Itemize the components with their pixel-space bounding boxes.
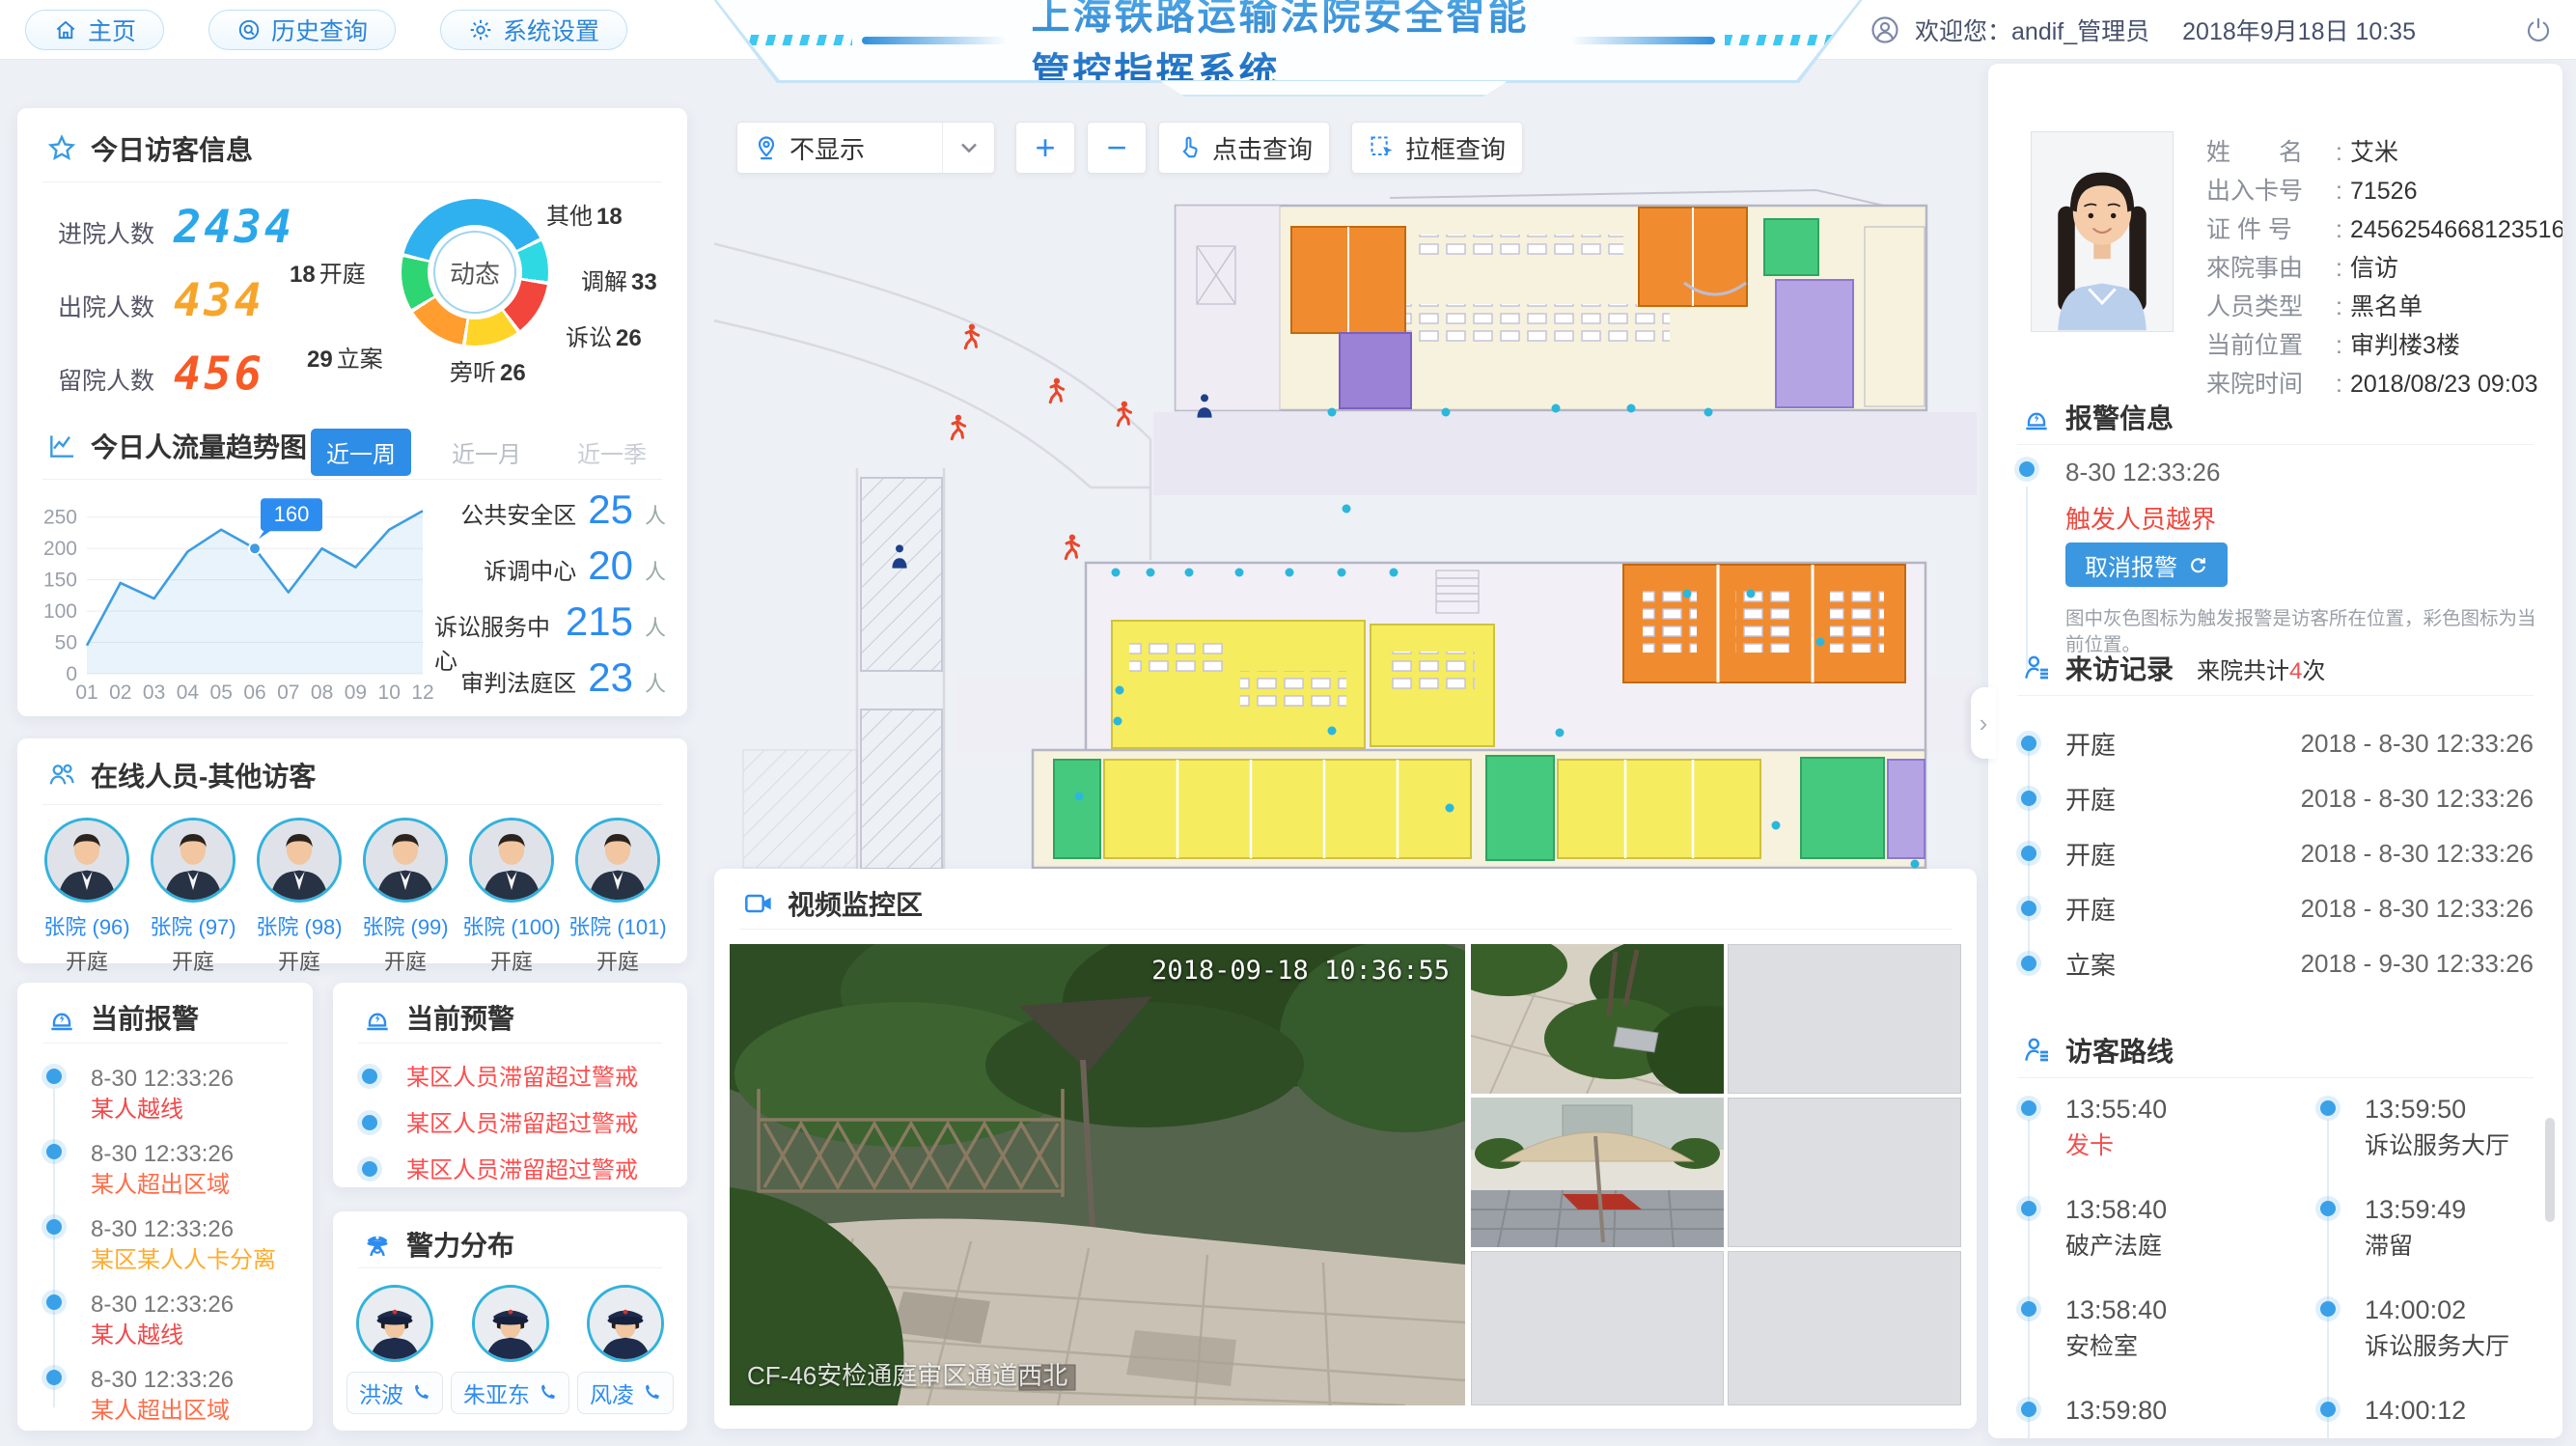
timeline-dot — [2021, 956, 2036, 971]
person-field-label: 人员类型 — [2206, 288, 2334, 326]
online-person-name: 张院 (97) — [150, 910, 235, 941]
timeline-dot — [2320, 1301, 2336, 1317]
video-title: 视频监控区 — [788, 884, 923, 923]
online-person-name: 张院 (100) — [462, 910, 560, 941]
avatar — [151, 818, 235, 903]
online-person[interactable]: 张院 (97) 开庭 — [143, 818, 243, 976]
area-stat-unit: 人 — [645, 611, 666, 642]
male-avatar-image — [472, 820, 551, 900]
timeline-dot — [46, 1294, 62, 1310]
app-title-banner: 上海铁路运输法院安全智能管控指挥系统 — [714, 0, 1863, 83]
visitor-stat-label: 进院人数 — [58, 215, 154, 250]
visit-date: 2018 - 8-30 12:33:26 — [2301, 729, 2534, 759]
officer[interactable]: 洪波 — [346, 1285, 443, 1414]
person-list-icon — [2021, 653, 2052, 683]
alarm-time: 8-30 12:33:26 — [91, 1064, 297, 1095]
person-photo — [2031, 131, 2174, 332]
visit-record-row: 开庭 2018 - 8-30 12:33:26 — [2017, 881, 2534, 936]
warning-text: 某区人员滞留超过警戒 — [406, 1064, 672, 1093]
person-field-row: 当前位置 : 审判楼3楼 — [2206, 326, 2562, 365]
detail-panel: 姓 名 : 艾米 出入卡号 : 71526 证 件 号 : 2456254668… — [1988, 64, 2562, 1438]
nav-settings-label: 系统设置 — [503, 13, 599, 47]
current-alarm-card: 当前报警 8-30 12:33:26 某人越线 8-30 12:33:26 某人… — [17, 983, 313, 1431]
area-stat-label: 公共安全区 — [460, 496, 576, 530]
visitor-stat-row: 出院人数 434 — [58, 274, 294, 348]
area-stat-row: 诉调中心 20 人 — [434, 542, 666, 598]
avatar — [44, 818, 129, 903]
top-bar: 主页 历史查询 系统设置 上海铁路运输法院安全智能管控指挥系统 欢迎您：andi… — [0, 0, 2576, 60]
route-place: 安检室 — [2065, 1330, 2287, 1363]
person-field-label: 当前位置 — [2206, 326, 2334, 365]
person-field-colon: : — [2336, 288, 2342, 326]
alarm-info-title: 报警信息 — [2065, 398, 2174, 436]
donut-label-tiaojie: 调解33 — [581, 263, 661, 296]
police-distribution-card: 警力分布 洪波 朱亚东 风凌 — [333, 1211, 687, 1431]
route-entry: 13:59:80 — [2017, 1394, 2287, 1438]
star-icon — [46, 133, 77, 164]
timeline-dot — [46, 1144, 62, 1159]
warning-item[interactable]: 某区人员滞留超过警戒 — [362, 1064, 672, 1093]
person-field-value: 黑名单 — [2350, 288, 2423, 326]
online-person[interactable]: 张院 (96) 开庭 — [37, 818, 137, 976]
area-stat-unit: 人 — [645, 555, 666, 586]
police-avatar-image — [359, 1288, 430, 1359]
timeline-dot — [46, 1219, 62, 1235]
svg-text:250: 250 — [43, 507, 77, 529]
online-person-name: 张院 (96) — [43, 910, 129, 941]
person-field-value: 审判楼3楼 — [2350, 326, 2460, 365]
donut-label-kaiting: 18开庭 — [286, 255, 366, 289]
avatar — [257, 818, 342, 903]
warning-item[interactable]: 某区人员滞留超过警戒 — [362, 1156, 672, 1185]
visit-type: 开庭 — [2065, 726, 2116, 762]
route-column-left: 13:55:40 发卡 13:58:40 破产法庭 13:58:40 安检室 1… — [2017, 1093, 2287, 1438]
svg-text:160: 160 — [274, 502, 310, 526]
svg-text:01: 01 — [75, 681, 97, 704]
route-time: 13:58:40 — [2065, 1193, 2287, 1226]
online-person-status: 开庭 — [66, 945, 108, 976]
timeline-dot — [46, 1370, 62, 1385]
online-people-row: 张院 (96) 开庭 张院 (97) 开庭 张院 (98) 开庭 张院 (99)… — [37, 818, 668, 976]
current-alarm-header: 当前报警 — [46, 998, 199, 1037]
visit-date: 2018 - 8-30 12:33:26 — [2301, 784, 2534, 814]
alarm-time: 8-30 12:33:26 — [91, 1290, 297, 1321]
timeline-dot — [2021, 1201, 2036, 1216]
title-banner-tab — [1160, 81, 1508, 97]
timeline-dot — [2021, 791, 2036, 806]
video-main-feed[interactable]: 2018-09-18 10:36:55 CF-46安检通庭审区通道西北 — [730, 944, 1465, 1405]
phone-icon — [538, 1383, 557, 1403]
alarm-icon — [2021, 402, 2052, 432]
map-visitor-markers[interactable] — [952, 324, 1130, 559]
divider — [358, 1043, 662, 1043]
title-decoration-right — [1570, 35, 1860, 45]
history-search-icon — [236, 17, 262, 42]
divider — [42, 479, 662, 480]
welcome-text: 欢迎您：andif_管理员 — [1915, 13, 2149, 47]
route-place: 滞留 — [2365, 1230, 2548, 1263]
route-entry: 13:58:40 安检室 — [2017, 1293, 2287, 1394]
video-placeholder[interactable] — [1471, 1251, 1724, 1405]
route-time: 13:55:40 — [2065, 1093, 2287, 1126]
person-field-value: 245625466812351625 — [2350, 210, 2562, 249]
area-stat-value: 23 — [588, 654, 633, 701]
map-click-query-button[interactable]: 点击查询 — [1158, 122, 1330, 174]
route-place: 诉讼服务大厅 — [2365, 1330, 2548, 1363]
visit-count-text: 来院共计4次 — [2197, 652, 2325, 685]
route-time: 13:59:80 — [2065, 1394, 2287, 1427]
timeline-rail — [2026, 487, 2028, 670]
officer-name: 洪波 — [359, 1376, 403, 1409]
officer[interactable]: 风凌 — [577, 1285, 674, 1414]
phone-icon — [642, 1383, 661, 1403]
power-icon[interactable] — [2524, 15, 2553, 44]
cancel-alarm-button[interactable]: 取消报警 — [2065, 542, 2228, 587]
person-field-colon: : — [2336, 326, 2342, 365]
visit-type: 开庭 — [2065, 836, 2116, 872]
main-nav: 主页 历史查询 系统设置 — [25, 0, 627, 60]
visitor-route-title: 访客路线 — [2065, 1031, 2174, 1070]
donut-center-label: 动态 — [402, 199, 548, 346]
video-placeholder[interactable] — [1728, 1098, 1961, 1247]
tab-quarter[interactable]: 近一季 — [562, 429, 662, 476]
alarm-icon — [46, 1002, 77, 1033]
map-box-query-label: 拉框查询 — [1405, 130, 1506, 166]
map-building-top — [1176, 190, 1926, 410]
visit-type: 开庭 — [2065, 891, 2116, 927]
map-parking-strip — [861, 478, 942, 671]
online-header: 在线人员-其他访客 — [46, 756, 316, 794]
alarm-time: 8-30 12:33:26 — [91, 1139, 297, 1170]
person-field-value: 信访 — [2350, 249, 2398, 288]
video-thumb-2-scene — [1471, 1098, 1724, 1247]
person-field-label: 来院时间 — [2206, 365, 2334, 403]
alarm-timeline: 8-30 12:33:26 某人越线 8-30 12:33:26 某人超出区域 … — [46, 1064, 297, 1431]
visitor-stat-row: 进院人数 2434 — [58, 201, 294, 274]
route-entry: 13:55:40 发卡 — [2017, 1093, 2287, 1193]
visitor-stat-value: 434 — [174, 274, 264, 327]
visit-type: 立案 — [2065, 946, 2116, 982]
alarm-text: 某人越线 — [91, 1095, 297, 1126]
area-stat-value: 215 — [566, 598, 633, 645]
visitor-info-title: 今日访客信息 — [91, 129, 253, 168]
floor-plan-map[interactable] — [714, 188, 1979, 874]
route-place: 发卡 — [2065, 1129, 2287, 1162]
route-entry: 13:59:49 滞留 — [2316, 1193, 2548, 1293]
chevron-down-icon — [956, 134, 983, 161]
avatar — [587, 1285, 664, 1362]
video-camera-label: CF-46安检通庭审区通道西北 — [747, 1356, 1067, 1392]
route-time: 13:59:50 — [2365, 1093, 2548, 1126]
title-decoration-left — [717, 35, 1007, 45]
map-box-query-button[interactable]: 拉框查询 — [1351, 122, 1523, 174]
timeline-dot — [2021, 846, 2036, 861]
visitor-stat-row: 留院人数 456 — [58, 348, 294, 421]
timeline-dot — [362, 1115, 377, 1130]
visit-record-title: 来访记录 — [2065, 649, 2174, 687]
person-field-row: 姓 名 : 艾米 — [2206, 133, 2562, 172]
area-stat-value: 25 — [588, 487, 633, 533]
donut-label-lian: 29立案 — [303, 340, 383, 374]
route-time: 13:59:49 — [2365, 1193, 2548, 1226]
person-field-label: 出入卡号 — [2206, 172, 2334, 210]
visitor-donut-chart: 动态 — [402, 199, 548, 346]
visit-record-row: 开庭 2018 - 8-30 12:33:26 — [2017, 716, 2534, 771]
svg-text:200: 200 — [43, 538, 77, 560]
hand-pointer-icon — [1176, 134, 1203, 161]
person-field-label: 姓 名 — [2206, 133, 2334, 172]
nav-home-button[interactable]: 主页 — [25, 10, 164, 50]
online-title: 在线人员-其他访客 — [91, 756, 316, 794]
box-select-cursor-icon — [1369, 134, 1396, 161]
timeline-dot — [46, 1069, 62, 1084]
area-stat-unit: 人 — [645, 499, 666, 530]
timeline-dot — [2021, 1100, 2036, 1116]
svg-text:03: 03 — [143, 681, 165, 704]
svg-text:09: 09 — [345, 681, 367, 704]
svg-text:06: 06 — [243, 681, 265, 704]
nav-home-label: 主页 — [88, 13, 136, 47]
svg-text:50: 50 — [55, 632, 77, 654]
visit-record-list: 开庭 2018 - 8-30 12:33:26 开庭 2018 - 8-30 1… — [2017, 716, 2534, 991]
online-person[interactable]: 张院 (99) 开庭 — [355, 818, 456, 976]
svg-text:10: 10 — [378, 681, 401, 704]
alarm-item[interactable]: 8-30 12:33:26 某人超出区域 — [46, 1365, 297, 1427]
male-avatar-image — [366, 820, 445, 900]
officers-row: 洪波 朱亚东 风凌 — [343, 1285, 678, 1414]
online-person[interactable]: 张院 (101) 开庭 — [568, 818, 668, 976]
video-thumb-1-scene — [1471, 944, 1724, 1094]
alarm-text: 某人超出区域 — [91, 1170, 297, 1201]
person-portrait — [2032, 132, 2173, 331]
alarm-text: 某人超出区域 — [91, 1396, 297, 1427]
warning-text: 某区人员滞留超过警戒 — [406, 1110, 672, 1139]
area-stat-row: 公共安全区 25 人 — [434, 487, 666, 542]
person-field-row: 來院事由 : 信访 — [2206, 249, 2562, 288]
video-thumb-2[interactable] — [1471, 1098, 1724, 1247]
person-field-value: 71526 — [2350, 172, 2418, 210]
phone-icon — [411, 1383, 430, 1403]
donut-label-qita: 其他18 — [546, 197, 626, 231]
timeline-dot — [2320, 1402, 2336, 1417]
svg-text:02: 02 — [109, 681, 131, 704]
area-stat-unit: 人 — [645, 667, 666, 698]
person-field-value: 艾米 — [2350, 133, 2398, 172]
donut-label-susong: 诉讼26 — [566, 319, 646, 352]
timeline-dot — [2021, 1301, 2036, 1317]
map-parking-strip — [861, 709, 942, 869]
datetime-text: 2018年9月18日 10:35 — [2182, 13, 2416, 47]
timeline-dot — [362, 1161, 377, 1177]
alarm-info-time: 8-30 12:33:26 — [2065, 458, 2220, 487]
alarm-item[interactable]: 8-30 12:33:26 某区某人人卡分离 — [46, 1214, 297, 1276]
person-route-icon — [2021, 1035, 2052, 1066]
visitor-route-header: 访客路线 — [2021, 1031, 2174, 1070]
online-person-status: 开庭 — [596, 945, 639, 976]
svg-text:05: 05 — [210, 681, 233, 704]
gear-icon — [468, 17, 493, 42]
video-timestamp: 2018-09-18 10:36:55 — [1151, 956, 1450, 986]
divider — [42, 181, 662, 182]
svg-text:150: 150 — [43, 570, 77, 592]
male-avatar-image — [47, 820, 126, 900]
location-pin-icon — [753, 134, 780, 161]
officer-name: 风凌 — [590, 1376, 634, 1409]
alarm-text: 某区某人人卡分离 — [91, 1245, 297, 1276]
visit-record-row: 开庭 2018 - 8-30 12:33:26 — [2017, 771, 2534, 826]
video-main-scene — [730, 944, 1465, 1405]
timeline-dot — [2019, 461, 2035, 477]
cancel-alarm-label: 取消报警 — [2085, 548, 2177, 582]
user-icon — [1870, 15, 1899, 44]
divider — [42, 804, 662, 805]
trend-header: 今日人流量趋势图 — [46, 427, 307, 465]
route-place: 诉讼服务大厅 — [2365, 1129, 2548, 1162]
visitor-stats: 进院人数 2434 出院人数 434 留院人数 456 — [58, 201, 294, 421]
alarm-time: 8-30 12:33:26 — [91, 1365, 297, 1396]
divider — [42, 1043, 288, 1043]
video-header: 视频监控区 — [743, 884, 923, 923]
male-avatar-image — [153, 820, 233, 900]
male-avatar-image — [260, 820, 339, 900]
video-camera-icon — [743, 888, 774, 919]
person-field-colon: : — [2336, 210, 2342, 249]
area-stat-label: 审判法庭区 — [460, 664, 576, 698]
route-time: 14:00:12 — [2365, 1394, 2548, 1427]
trend-tabs: 近一周 近一月 近一季 — [311, 429, 662, 476]
officer[interactable]: 朱亚东 — [451, 1285, 569, 1414]
officer-call-pill[interactable]: 风凌 — [577, 1372, 674, 1414]
person-field-value: 2018/08/23 09:03 — [2350, 365, 2538, 403]
person-field-row: 来院时间 : 2018/08/23 09:03 — [2206, 365, 2562, 403]
online-person-status: 开庭 — [172, 945, 214, 976]
officer-call-pill[interactable]: 朱亚东 — [451, 1372, 569, 1414]
route-time: 13:58:40 — [2065, 1293, 2287, 1326]
warning-item[interactable]: 某区人员滞留超过警戒 — [362, 1110, 672, 1139]
online-person[interactable]: 张院 (100) 开庭 — [461, 818, 562, 976]
map-zoom-out-button[interactable]: − — [1087, 122, 1147, 174]
person-field-row: 证 件 号 : 245625466812351625 — [2206, 210, 2562, 249]
dropdown-chevron[interactable] — [942, 123, 994, 173]
area-stat-label: 诉调中心 — [484, 552, 576, 586]
refresh-icon — [2187, 554, 2208, 575]
timeline-dot — [2320, 1201, 2336, 1216]
avatar — [356, 1285, 433, 1362]
visit-date: 2018 - 8-30 12:33:26 — [2301, 839, 2534, 869]
line-chart-icon — [46, 431, 77, 461]
male-avatar-image — [578, 820, 657, 900]
map-layer-value: 不显示 — [789, 130, 865, 166]
visitor-stat-label: 出院人数 — [58, 289, 154, 323]
online-person[interactable]: 张院 (98) 开庭 — [249, 818, 349, 976]
online-people-card: 在线人员-其他访客 张院 (96) 开庭 张院 (97) 开庭 张院 (98) … — [17, 738, 687, 963]
map-corridor-upper — [1153, 412, 1977, 495]
warning-text: 某区人员滞留超过警戒 — [406, 1156, 672, 1185]
person-field-label: 证 件 号 — [2206, 210, 2334, 249]
officer-call-pill[interactable]: 洪波 — [346, 1372, 443, 1414]
online-person-name: 张院 (99) — [362, 910, 448, 941]
video-placeholder[interactable] — [1728, 1251, 1961, 1405]
route-place: 破产法庭 — [2065, 1230, 2287, 1263]
timeline-dot — [2021, 736, 2036, 751]
visit-type: 开庭 — [2065, 781, 2116, 817]
visitor-info-header: 今日访客信息 — [46, 129, 253, 168]
route-column-right: 13:59:50 诉讼服务大厅 13:59:49 滞留 14:00:02 诉讼服… — [2316, 1093, 2548, 1438]
panel-collapse-handle[interactable]: › — [1971, 687, 1996, 759]
divider — [739, 929, 1952, 930]
current-warning-card: 当前预警 某区人员滞留超过警戒 某区人员滞留超过警戒 某区人员滞留超过警戒 — [333, 983, 687, 1187]
police-avatar-image — [590, 1288, 661, 1359]
svg-text:12: 12 — [411, 681, 433, 704]
visitor-stat-value: 456 — [174, 348, 264, 401]
officer-name: 朱亚东 — [463, 1376, 530, 1409]
svg-text:04: 04 — [177, 681, 200, 704]
alarm-item[interactable]: 8-30 12:33:26 某人越线 — [46, 1064, 297, 1126]
svg-text:07: 07 — [277, 681, 299, 704]
divider — [2017, 695, 2534, 696]
divider — [2017, 444, 2534, 445]
video-surveillance-card: 视频监控区 — [714, 869, 1977, 1429]
visit-record-row: 立案 2018 - 9-30 12:33:26 — [2017, 936, 2534, 991]
person-fields: 姓 名 : 艾米 出入卡号 : 71526 证 件 号 : 2456254668… — [2206, 133, 2562, 403]
dashboard-screen: 主页 历史查询 系统设置 上海铁路运输法院安全智能管控指挥系统 欢迎您：andi… — [0, 0, 2576, 1446]
tab-month[interactable]: 近一月 — [436, 429, 537, 476]
online-person-name: 张院 (101) — [568, 910, 666, 941]
video-placeholder[interactable] — [1728, 944, 1961, 1094]
tab-week[interactable]: 近一周 — [311, 429, 411, 476]
nav-settings-button[interactable]: 系统设置 — [440, 10, 627, 50]
nav-history-button[interactable]: 历史查询 — [208, 10, 396, 50]
trend-title: 今日人流量趋势图 — [91, 427, 307, 465]
alarm-info-alert: 触发人员越界 — [2065, 500, 2216, 536]
current-warning-header: 当前预警 — [362, 998, 514, 1037]
route-time: 14:00:02 — [2365, 1293, 2548, 1326]
online-person-status: 开庭 — [278, 945, 320, 976]
route-entry: 14:00:12 — [2316, 1394, 2548, 1438]
nav-history-label: 历史查询 — [271, 13, 368, 47]
video-thumb-1[interactable] — [1471, 944, 1724, 1094]
alarm-text: 某人越线 — [91, 1321, 297, 1351]
route-scrollbar[interactable] — [2545, 1118, 2555, 1222]
timeline-dot — [2320, 1100, 2336, 1116]
alarm-info-header: 报警信息 — [2021, 398, 2174, 436]
current-alarm-title: 当前报警 — [91, 998, 199, 1037]
warning-list: 某区人员滞留超过警戒 某区人员滞留超过警戒 某区人员滞留超过警戒 — [362, 1064, 672, 1203]
svg-text:08: 08 — [311, 681, 333, 704]
visitor-stat-value: 2434 — [174, 201, 294, 254]
warning-beacon-icon — [362, 1002, 393, 1033]
donut-label-pangting: 旁听26 — [450, 353, 530, 387]
visit-record-header: 来访记录 来院共计4次 — [2021, 649, 2325, 687]
divider — [358, 1267, 662, 1268]
person-field-row: 人员类型 : 黑名单 — [2206, 288, 2562, 326]
alarm-item[interactable]: 8-30 12:33:26 某人超出区域 — [46, 1139, 297, 1201]
map-layer-dropdown[interactable]: 不显示 — [736, 122, 995, 174]
route-entry: 14:00:02 诉讼服务大厅 — [2316, 1293, 2548, 1394]
map-zoom-in-button[interactable]: + — [1015, 122, 1075, 174]
police-cap-icon — [362, 1229, 393, 1260]
area-stat-row: 诉讼服务中心 215 人 — [434, 598, 666, 654]
user-area: 欢迎您：andif_管理员 2018年9月18日 10:35 — [1870, 0, 2553, 60]
visitor-stat-label: 留院人数 — [58, 362, 154, 397]
map-building-bottom — [1033, 750, 1925, 868]
avatar — [469, 818, 554, 903]
police-header: 警力分布 — [362, 1225, 514, 1264]
map-building-mid — [1086, 563, 1925, 756]
visitor-info-card: 今日访客信息 进院人数 2434 出院人数 434 留院人数 456 动态 其他… — [17, 108, 687, 716]
alarm-item[interactable]: 8-30 12:33:26 某人越线 — [46, 1290, 297, 1351]
current-warning-title: 当前预警 — [406, 998, 514, 1037]
